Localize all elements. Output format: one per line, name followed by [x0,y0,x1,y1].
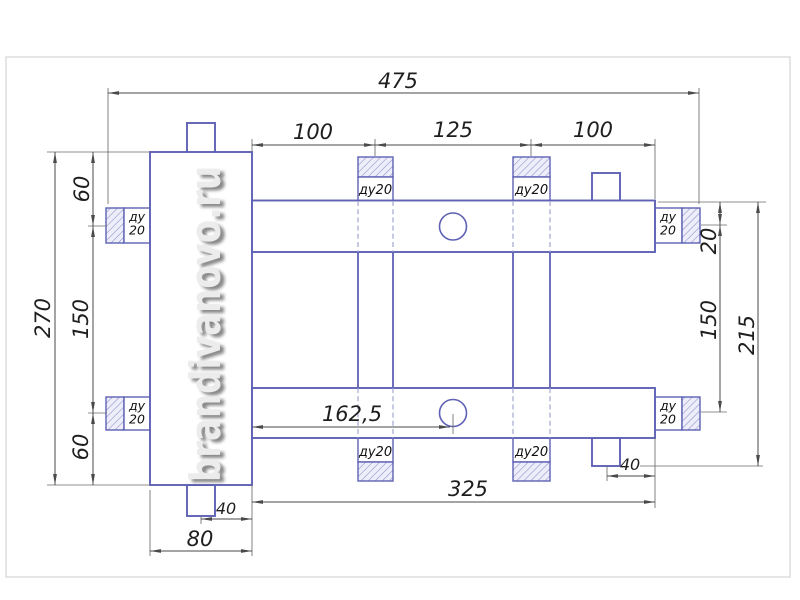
dim-text-215: 215 [735,315,759,355]
port-hatch [513,157,550,177]
dim-text-40-right: 40 [620,455,640,474]
port-dn-label: ду20 [128,209,146,238]
top-port-1: ду20 [358,157,393,201]
port-dn-label: ду20 [514,445,548,460]
top-stub [187,123,215,153]
dim-text-60-lower: 60 [69,434,93,461]
port-dn-label: ду20 [514,183,548,198]
port-hatch [358,462,393,481]
dim-text-20: 20 [697,228,721,255]
bottom-port-1: ду20 [358,438,393,481]
lower-manifold-bar [252,388,655,438]
port-dn-label: ду20 [128,398,146,427]
port-hatch [358,157,393,177]
technical-drawing: ду20 ду20 ду20 ду20 ду20 ду20 ду20 ду20 [0,0,800,600]
port-hatch [106,208,124,243]
dim-text-162-5: 162,5 [322,402,382,426]
right-port-lower: ду20 [655,397,700,430]
top-port-2: ду20 [513,157,550,201]
port-dn-label: ду20 [358,445,392,460]
left-port-upper: ду20 [106,208,150,243]
dim-text-325: 325 [448,477,488,501]
port-hatch [106,397,124,430]
bottom-port-2: ду20 [513,438,550,481]
dim-text-270: 270 [31,298,55,338]
right-port-upper: ду20 [655,208,700,243]
watermark-text: brandivanovo.ru [181,166,230,482]
dim-text-100-right: 100 [573,118,613,142]
port-dn-label: ду20 [659,398,677,427]
dim-text-125: 125 [433,118,473,142]
sheet-border [6,57,790,577]
dim-text-475: 475 [378,69,418,93]
left-port-lower: ду20 [106,397,150,430]
lower-bar-right-stub [592,438,620,466]
dim-text-100-left: 100 [293,120,333,144]
port-hatch [682,397,700,430]
dim-text-60-upper: 60 [70,176,94,203]
watermark: brandivanovo.ru brandivanovo.ru [181,166,234,485]
port-dn-label: ду20 [358,183,392,198]
upper-manifold-bar [252,201,655,253]
bottom-stub [187,485,215,516]
dim-text-80: 80 [187,527,214,551]
dim-text-150-right: 150 [697,300,721,340]
dim-text-40-bottom: 40 [216,499,236,518]
upper-bar-right-stub [592,173,620,202]
dim-text-150-left: 150 [69,299,93,339]
port-hatch [513,462,550,481]
port-dn-label: ду20 [659,209,677,238]
